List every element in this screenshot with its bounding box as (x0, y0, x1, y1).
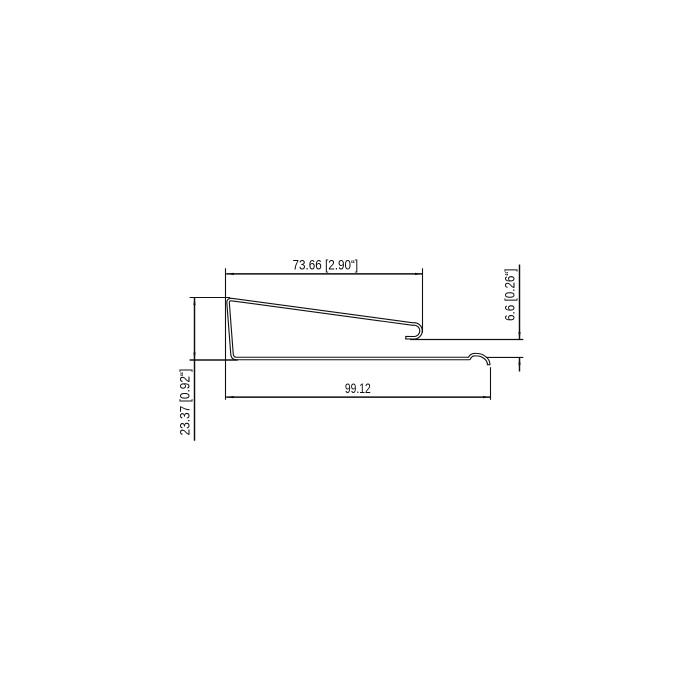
svg-text:73.66 [2.90“]: 73.66 [2.90“] (292, 258, 358, 273)
svg-text:6.6 [0.26“]: 6.6 [0.26“] (503, 268, 518, 321)
svg-text:23.37 [0.92“]: 23.37 [0.92“] (178, 369, 193, 436)
svg-text:99.12: 99.12 (345, 381, 371, 396)
